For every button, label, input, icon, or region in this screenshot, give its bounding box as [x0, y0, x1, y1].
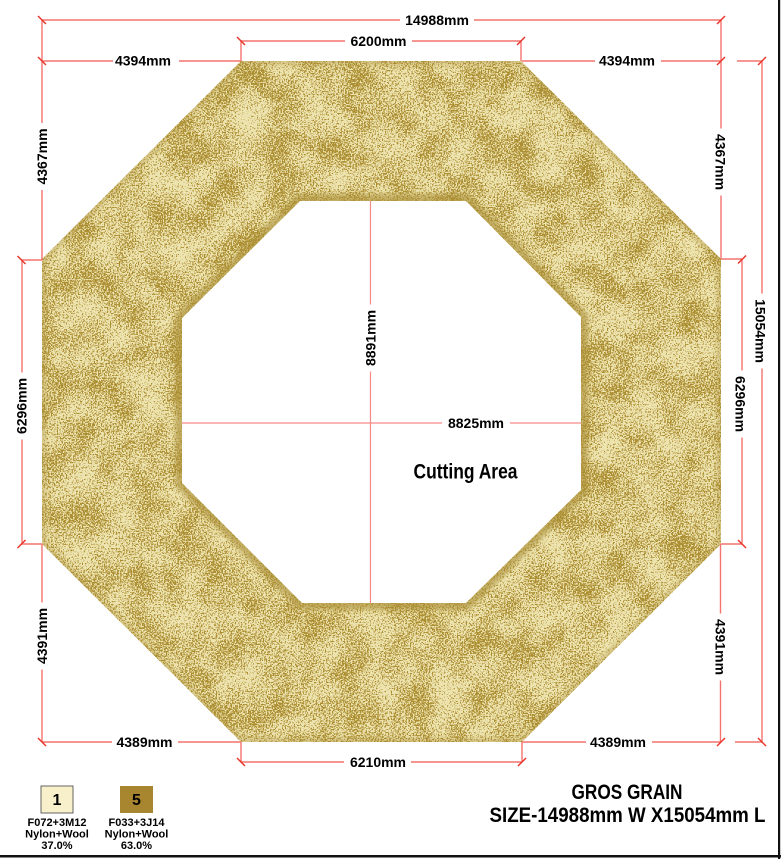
- svg-text:8825mm: 8825mm: [448, 415, 504, 431]
- svg-text:4391mm: 4391mm: [713, 619, 729, 675]
- svg-text:Cutting Area: Cutting Area: [414, 461, 518, 484]
- svg-text:Nylon+Wool: Nylon+Wool: [25, 829, 89, 841]
- svg-text:4394mm: 4394mm: [599, 53, 655, 69]
- svg-text:63.0%: 63.0%: [121, 840, 152, 852]
- svg-text:8891mm: 8891mm: [363, 310, 379, 366]
- svg-text:4391mm: 4391mm: [34, 608, 50, 664]
- svg-text:F072+3M12: F072+3M12: [27, 817, 86, 829]
- svg-text:6296mm: 6296mm: [14, 378, 30, 434]
- svg-text:4389mm: 4389mm: [590, 734, 646, 750]
- svg-text:15054mm: 15054mm: [753, 299, 769, 363]
- svg-text:GROS GRAIN: GROS GRAIN: [572, 781, 683, 804]
- svg-text:4394mm: 4394mm: [115, 53, 171, 69]
- svg-text:Nylon+Wool: Nylon+Wool: [105, 829, 169, 841]
- svg-text:F033+3J14: F033+3J14: [109, 817, 166, 829]
- svg-text:5: 5: [132, 792, 141, 809]
- svg-text:14988mm: 14988mm: [405, 12, 469, 28]
- svg-text:6296mm: 6296mm: [733, 376, 749, 432]
- svg-text:6210mm: 6210mm: [350, 754, 406, 770]
- svg-text:SIZE-14988mm W X15054mm L: SIZE-14988mm W X15054mm L: [490, 804, 766, 827]
- svg-text:6200mm: 6200mm: [350, 33, 406, 49]
- svg-text:4389mm: 4389mm: [116, 734, 172, 750]
- svg-text:4367mm: 4367mm: [34, 128, 50, 184]
- svg-text:1: 1: [53, 792, 62, 809]
- svg-text:37.0%: 37.0%: [41, 840, 72, 852]
- svg-text:4367mm: 4367mm: [713, 134, 729, 190]
